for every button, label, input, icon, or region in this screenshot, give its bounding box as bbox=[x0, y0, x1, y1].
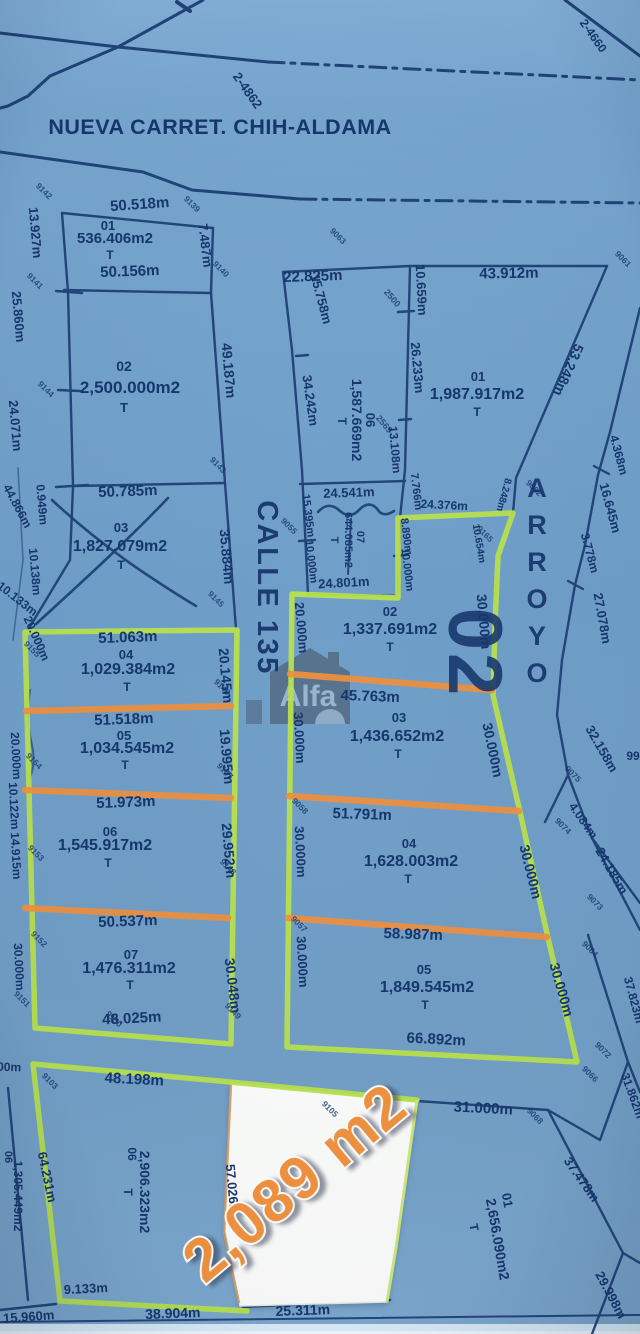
measurement-label: 20.000m bbox=[8, 732, 24, 780]
parcel-number-label: 05 bbox=[417, 962, 431, 977]
watermark-fragment bbox=[246, 700, 262, 724]
parcel-area-label: 1,337.691m2 bbox=[343, 621, 437, 638]
tee-symbol: T bbox=[121, 1188, 135, 1196]
tee-symbol: T bbox=[335, 417, 349, 425]
parcel-number-label: 06 bbox=[125, 1147, 139, 1161]
measurement-label: 24.376m bbox=[420, 497, 468, 513]
tee-symbol: T bbox=[121, 758, 129, 772]
parcel-area-label: 2,500.000m2 bbox=[80, 378, 180, 397]
parcel-area-label: 1,305.449m2 bbox=[11, 1161, 25, 1232]
parcel-number-label: 03 bbox=[114, 520, 128, 535]
tee-symbol: T bbox=[328, 537, 340, 544]
measurement-label: 43.912m bbox=[479, 264, 539, 282]
parcel-area-label: 536.406m2 bbox=[77, 230, 153, 247]
tee-symbol: T bbox=[117, 558, 125, 572]
measurement-label: 50.537m bbox=[98, 912, 158, 931]
parcel-number-label: 03 bbox=[392, 710, 406, 725]
measurement-label: 30.000m bbox=[292, 826, 310, 878]
parcel-area-label: 1,476.311m2 bbox=[82, 960, 176, 977]
parcel-area-label: 2,906.323m2 bbox=[137, 1151, 153, 1234]
parcel-area-label: 1,034.545m2 bbox=[80, 740, 174, 757]
measurement-label: 50.785m bbox=[98, 482, 158, 501]
survey-plat-svg: Alfa 2-48622-466050.518m01536.406m2T50.1… bbox=[0, 0, 640, 1334]
parcel-area-label: 644.085m2 bbox=[342, 512, 354, 568]
parcel-number-label: 07 bbox=[354, 531, 366, 543]
measurement-label: 24.541m bbox=[323, 484, 375, 501]
tee-symbol: T bbox=[106, 248, 114, 262]
road-name-label: NUEVA CARRET. CHIH-ALDAMA bbox=[48, 115, 391, 139]
cadastral-map-scan: Alfa 2-48622-466050.518m01536.406m2T50.1… bbox=[0, 0, 640, 1334]
tee-symbol: T bbox=[126, 978, 134, 992]
measurement-label: 51.518m bbox=[94, 710, 154, 729]
measurement-label: 45.763m bbox=[340, 687, 400, 706]
parcel-number-label: 04 bbox=[402, 836, 417, 851]
measurement-label: 10.122m bbox=[6, 782, 22, 830]
measurement-label: 66.892m bbox=[406, 1029, 466, 1049]
measurement-label: 58.987m bbox=[383, 925, 443, 944]
tee-symbol: T bbox=[404, 872, 412, 886]
street-name-label: CALLE 135 bbox=[251, 500, 283, 676]
measurement-label: 00m bbox=[0, 1060, 21, 1075]
measurement-label: 30.000m bbox=[291, 712, 309, 764]
block-number-label: 02 bbox=[432, 608, 517, 699]
measurement-label: 31.000m bbox=[453, 1098, 513, 1118]
measurement-label: 99 bbox=[626, 749, 640, 763]
measurement-label: 24.801m bbox=[318, 574, 370, 592]
measurement-label: 38.904m bbox=[145, 1304, 201, 1322]
measurement-label: 9.133m bbox=[63, 1280, 108, 1297]
tee-symbol: T bbox=[386, 640, 394, 654]
measurement-label: 51.973m bbox=[96, 793, 156, 812]
tee-symbol: T bbox=[120, 400, 128, 415]
measurement-label: 51.063m bbox=[98, 628, 158, 647]
parcel-area-label: 1,628.003m2 bbox=[364, 853, 458, 870]
measurement-label: 30.000m bbox=[11, 943, 27, 991]
parcel-area-label: 1,545.917m2 bbox=[58, 837, 152, 854]
parcel-area-label: 1,827.079m2 bbox=[73, 538, 167, 555]
tee-symbol: T bbox=[421, 998, 429, 1012]
watermark-chimney-icon bbox=[328, 652, 339, 665]
tee-symbol: T bbox=[104, 856, 112, 870]
parcel-number-label: 02 bbox=[116, 358, 132, 374]
measurement-label: 25.311m bbox=[275, 1301, 330, 1319]
measurement-label: 14.915m bbox=[8, 832, 24, 880]
tee-symbol: T bbox=[123, 680, 131, 694]
tee-symbol: T bbox=[394, 747, 402, 761]
parcel-number-label: 01 bbox=[499, 1192, 516, 1209]
parcel-number-label: 02 bbox=[383, 604, 397, 619]
measurement-label: 10.659m bbox=[413, 264, 431, 316]
parcel-area-label: 1,436.652m2 bbox=[350, 728, 444, 745]
tee-symbol: T bbox=[473, 405, 481, 419]
measurement-label: 30.000m bbox=[294, 936, 312, 988]
measurement-label: 48.198m bbox=[104, 1069, 164, 1089]
parcel-number-label: 01 bbox=[471, 369, 485, 384]
measurement-label: 51.791m bbox=[332, 805, 392, 824]
parcel-area-label: 1,587.669m2 bbox=[349, 379, 365, 462]
parcel-area-label: 1,029.384m2 bbox=[81, 661, 175, 678]
parcel-area-label: 1,849.545m2 bbox=[380, 979, 474, 996]
parcel-number-label: 04 bbox=[119, 647, 134, 662]
measurement-label: 50.156m bbox=[100, 262, 160, 281]
parcel-area-label: 1,987.917m2 bbox=[430, 386, 524, 403]
